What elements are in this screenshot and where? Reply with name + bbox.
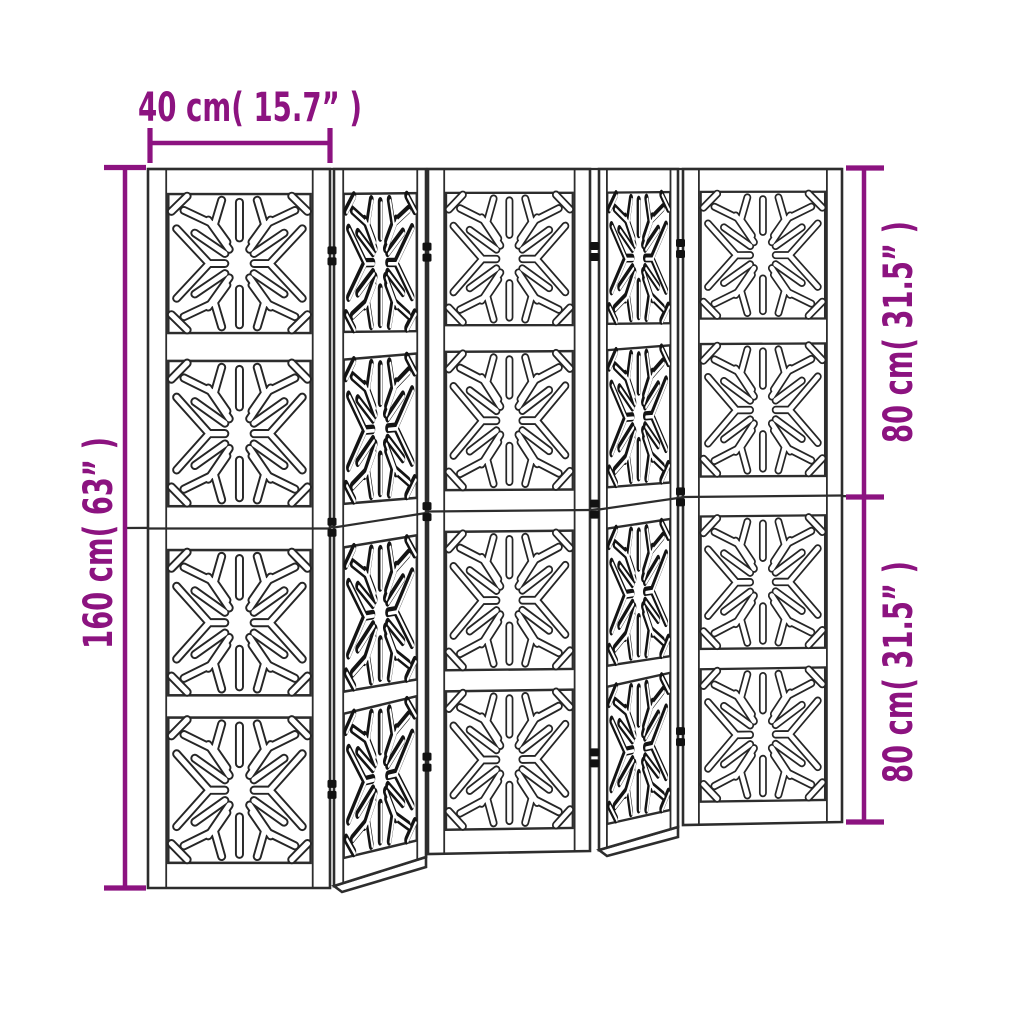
pattern-tile [608,192,670,324]
dimension-label-upper-section: 80 cm( 31.5” ) [876,221,922,443]
pattern-tile [701,343,825,476]
pattern-tile [608,519,670,666]
width-dimension: 40 cm( 15.7” ) [138,85,362,163]
room-divider-illustration [148,169,842,892]
panel-junction-line [683,496,842,498]
pattern-tile [446,531,573,671]
pattern-tile [344,193,416,332]
divider-panel-4 [599,169,678,856]
pattern-tile [608,345,670,487]
room-divider-diagram: 40 cm( 15.7” ) 160 cm( 63” ) 80 cm( 31.5… [0,0,1024,1024]
pattern-tile [701,667,825,801]
pattern-tile [701,515,825,649]
pattern-tile [608,673,670,824]
pattern-tile [168,718,310,863]
pattern-tile [344,696,416,858]
section-height-dimensions: 80 cm( 31.5” ) 80 cm( 31.5” ) [846,168,922,822]
divider-panel-2 [334,169,426,892]
pattern-tile [446,690,573,830]
dimension-label-lower-section: 80 cm( 31.5” ) [876,561,922,783]
pattern-tile [168,550,310,695]
hinge [590,242,599,261]
pattern-tile [446,193,573,325]
dimension-label-total-height: 160 cm( 63” ) [76,437,122,649]
dimension-label-width: 40 cm( 15.7” ) [138,85,362,131]
pattern-tile [701,192,825,319]
divider-panel-1 [148,169,330,888]
panel-junction-line [428,510,590,512]
pattern-tile [168,361,310,506]
pattern-tile [344,535,416,691]
pattern-tile [344,354,416,504]
pattern-tile [168,194,310,333]
divider-panel-3 [428,169,590,854]
divider-panel-5 [683,169,842,825]
dimension-diagram: 40 cm( 15.7” ) 160 cm( 63” ) 80 cm( 31.5… [0,0,1024,1024]
pattern-tile [446,351,573,490]
hinge [590,748,599,767]
